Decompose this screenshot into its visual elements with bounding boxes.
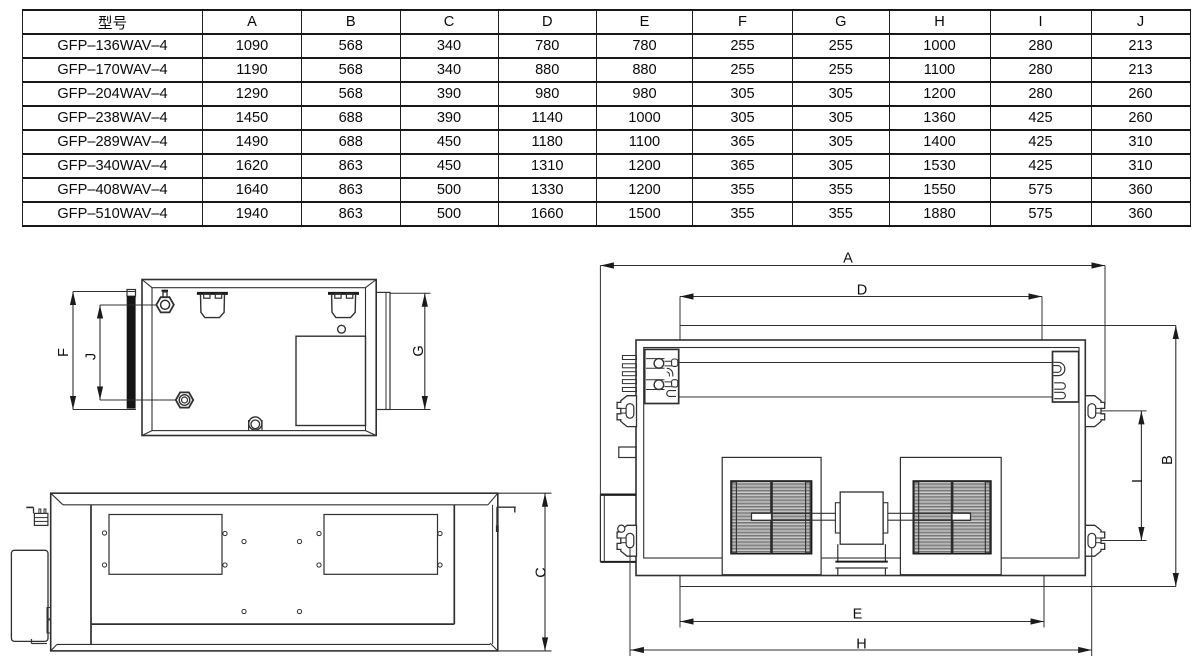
- svg-text:H: H: [856, 637, 866, 653]
- svg-text:C: C: [534, 567, 550, 577]
- svg-text:D: D: [857, 283, 867, 299]
- svg-text:E: E: [853, 607, 863, 623]
- svg-text:G: G: [411, 345, 427, 356]
- svg-text:J: J: [84, 353, 100, 360]
- svg-text:B: B: [1160, 455, 1176, 465]
- svg-text:A: A: [843, 251, 853, 267]
- svg-text:I: I: [1130, 479, 1146, 483]
- svg-text:F: F: [56, 348, 72, 357]
